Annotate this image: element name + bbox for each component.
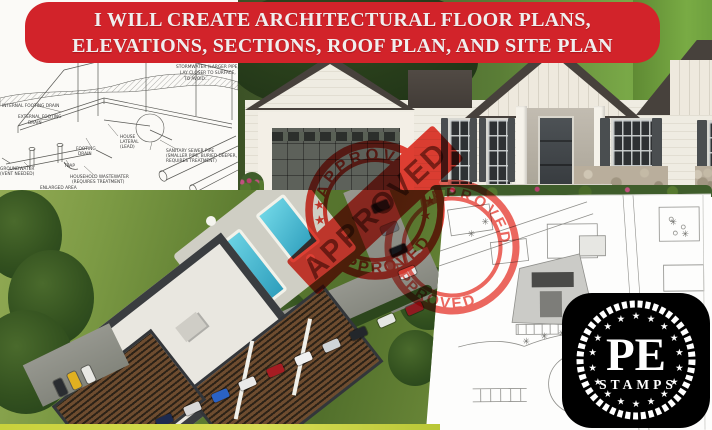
drawing-label: (REQUIRES TREATMENT) — [72, 179, 125, 185]
drawing-label: EXTERNAL FOOTING — [18, 114, 62, 120]
drawing-label: TO AVOID... — [183, 76, 209, 82]
drawing-label: (LEAD) — [120, 144, 135, 150]
star-icon: ★ — [675, 348, 684, 359]
star-icon: ★ — [617, 314, 626, 325]
drawing-label: (VENT NEEDED) — [0, 171, 35, 177]
title-line-1: I WILL CREATE ARCHITECTURAL FLOOR PLANS, — [94, 7, 591, 33]
star-icon: ★ — [588, 348, 597, 359]
car — [238, 376, 257, 391]
car — [322, 338, 341, 353]
pe-stamps-logo: ★★★★★★★★★★★★★★★★★★ PE STAMPS — [562, 293, 710, 428]
tree-symbol: ✳ — [681, 229, 689, 239]
gig-image[interactable]: INTERNAL FOOTING DRAINEXTERNAL FOOTINGDR… — [0, 0, 712, 430]
star-icon: ★ — [670, 333, 679, 344]
drawing-label: INTERNAL FOOTING DRAIN — [2, 103, 59, 109]
drawing-label: TRAP — [63, 163, 75, 169]
title-banner: I WILL CREATE ARCHITECTURAL FLOOR PLANS,… — [25, 2, 660, 63]
drawing-label: DRAIN — [28, 120, 42, 126]
pe-name: STAMPS — [599, 377, 677, 392]
star-icon: ★ — [313, 199, 325, 213]
drawing-label: STORMWATER (LARGER PIPE, — [176, 64, 238, 70]
star-icon: ★ — [420, 209, 432, 223]
bottom-edge-strip — [0, 424, 440, 430]
car — [210, 388, 229, 403]
car — [53, 378, 68, 397]
star-icon: ★ — [647, 314, 656, 325]
star-icon: ★ — [675, 363, 684, 374]
tree-symbol: ✳ — [669, 217, 677, 227]
star-icon: ★ — [588, 363, 597, 374]
star-icon: ★ — [594, 333, 603, 344]
car — [294, 351, 313, 366]
star-icon: ★ — [632, 399, 641, 410]
approved-stamp: APPROVED APPROVED APPROVED APPROVED ★ ★ … — [230, 90, 530, 340]
drawing-label: ENLARGED AREA — [40, 185, 77, 190]
car — [183, 400, 202, 415]
star-icon: ★ — [632, 311, 641, 322]
drawing-label: REQUIRES TREATMENT) — [166, 158, 217, 164]
star-icon: ★ — [647, 397, 656, 408]
title-line-2: ELEVATIONS, SECTIONS, ROOF PLAN, AND SIT… — [72, 33, 613, 59]
pe-initials: PE — [606, 329, 666, 381]
drawing-label: DRAIN — [78, 151, 92, 157]
car — [266, 363, 285, 378]
pe-stamps-emblem: ★★★★★★★★★★★★★★★★★★ PE STAMPS — [562, 293, 710, 428]
star-icon: ★ — [617, 397, 626, 408]
tree-symbol: ✳ — [540, 331, 548, 341]
car — [67, 371, 82, 390]
drawing-label: LAY CLOSER TO SURFACE, — [180, 70, 236, 76]
car — [81, 365, 96, 384]
right-gable-face — [670, 60, 712, 115]
